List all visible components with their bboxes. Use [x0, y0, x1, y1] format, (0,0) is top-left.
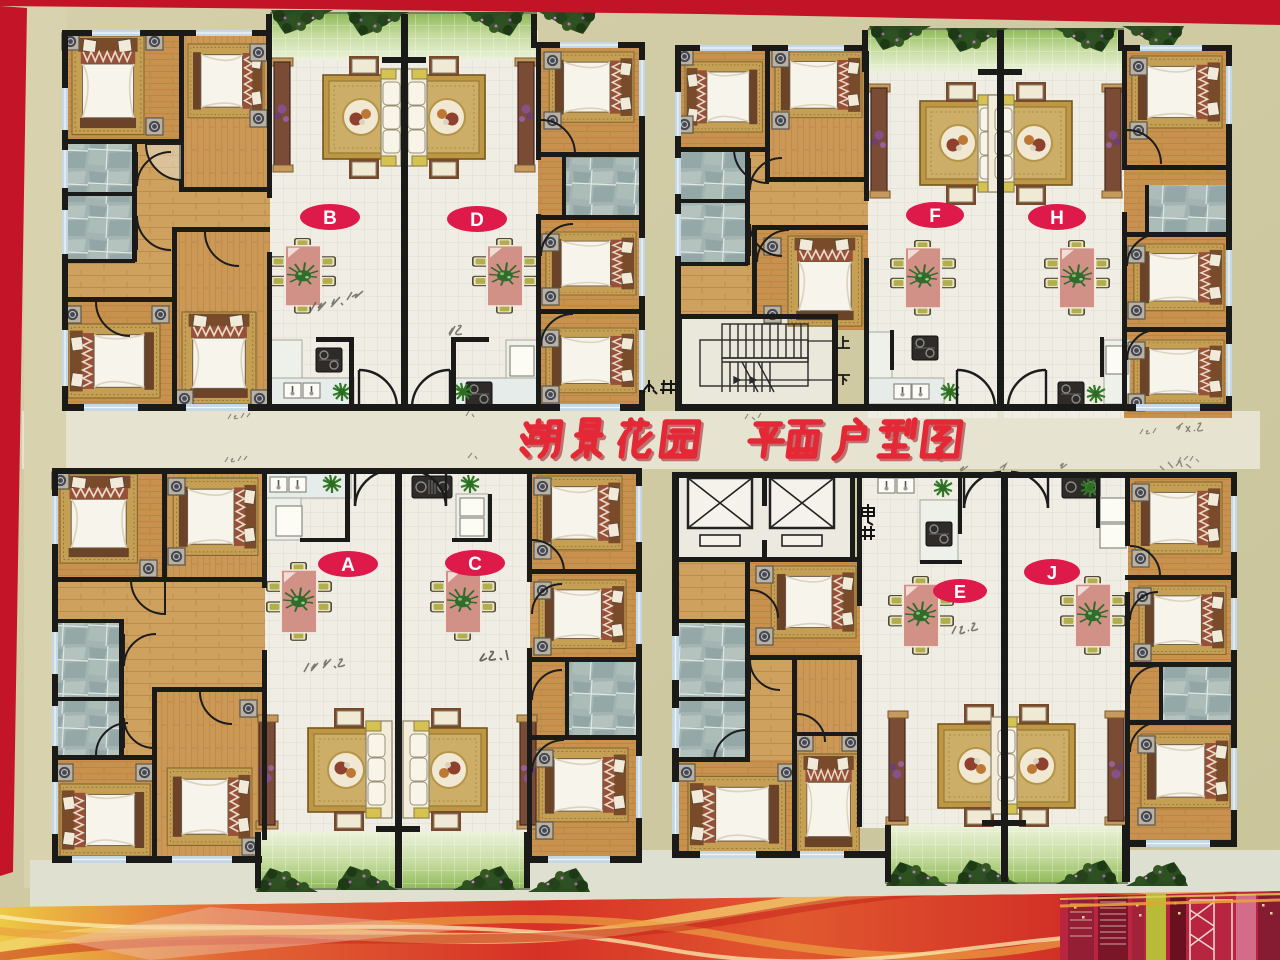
svg-text:A: A [341, 555, 355, 576]
svg-text:H: H [1050, 208, 1064, 229]
svg-text:F: F [929, 206, 941, 227]
svg-text:C: C [468, 554, 482, 575]
svg-text:B: B [323, 208, 337, 229]
svg-text:D: D [470, 210, 484, 231]
svg-text:J: J [1047, 563, 1057, 583]
svg-text:E: E [954, 582, 966, 602]
